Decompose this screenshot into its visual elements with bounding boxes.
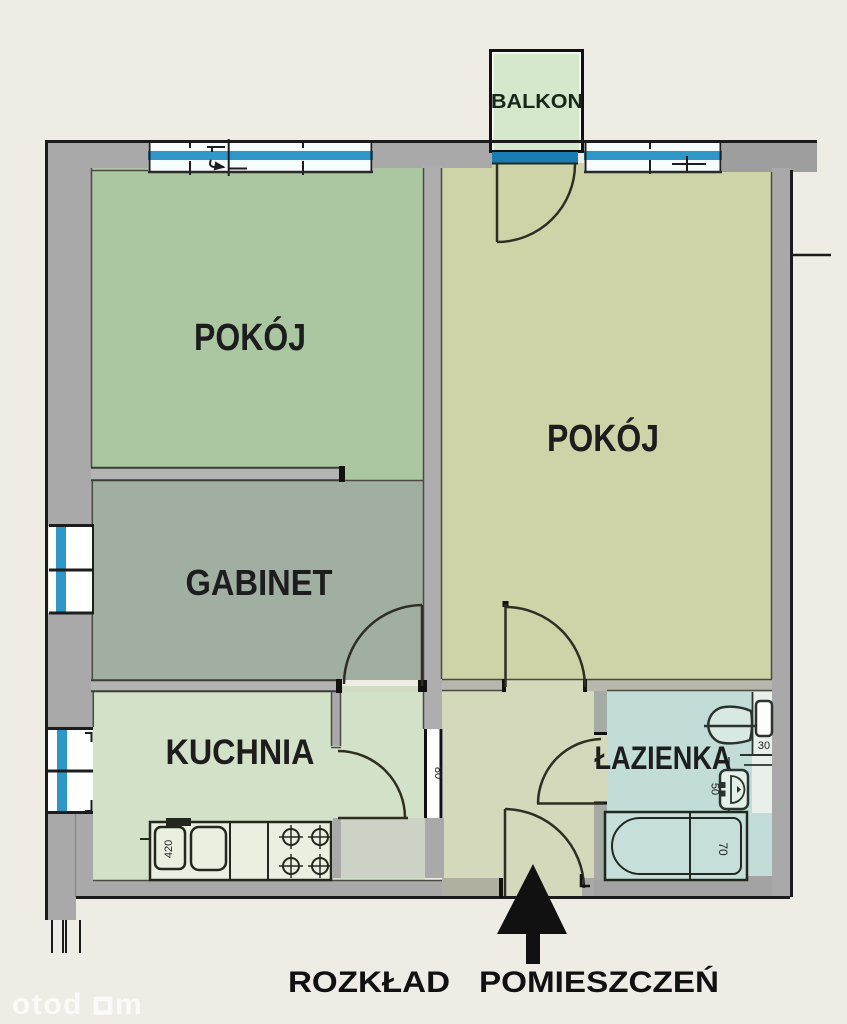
svg-text:POKÓJ: POKÓJ	[547, 416, 659, 460]
svg-text:50: 50	[709, 783, 721, 795]
svg-text:ROZKŁAD: ROZKŁAD	[288, 966, 450, 999]
svg-text:BALKON: BALKON	[491, 91, 583, 113]
svg-text:KUCHNIA: KUCHNIA	[166, 733, 315, 772]
svg-text:otod: otod	[12, 988, 83, 1021]
svg-text:30: 30	[758, 740, 770, 752]
svg-text:POMIESZCZEŃ: POMIESZCZEŃ	[479, 965, 719, 999]
svg-text:80: 80	[432, 767, 444, 779]
svg-text:POKÓJ: POKÓJ	[194, 315, 306, 359]
svg-text:420: 420	[163, 840, 175, 858]
svg-text:ŁAZIENKA: ŁAZIENKA	[595, 740, 732, 776]
svg-text:70: 70	[716, 842, 730, 856]
svg-text:GABINET: GABINET	[186, 562, 333, 603]
svg-text:m: m	[115, 988, 142, 1021]
